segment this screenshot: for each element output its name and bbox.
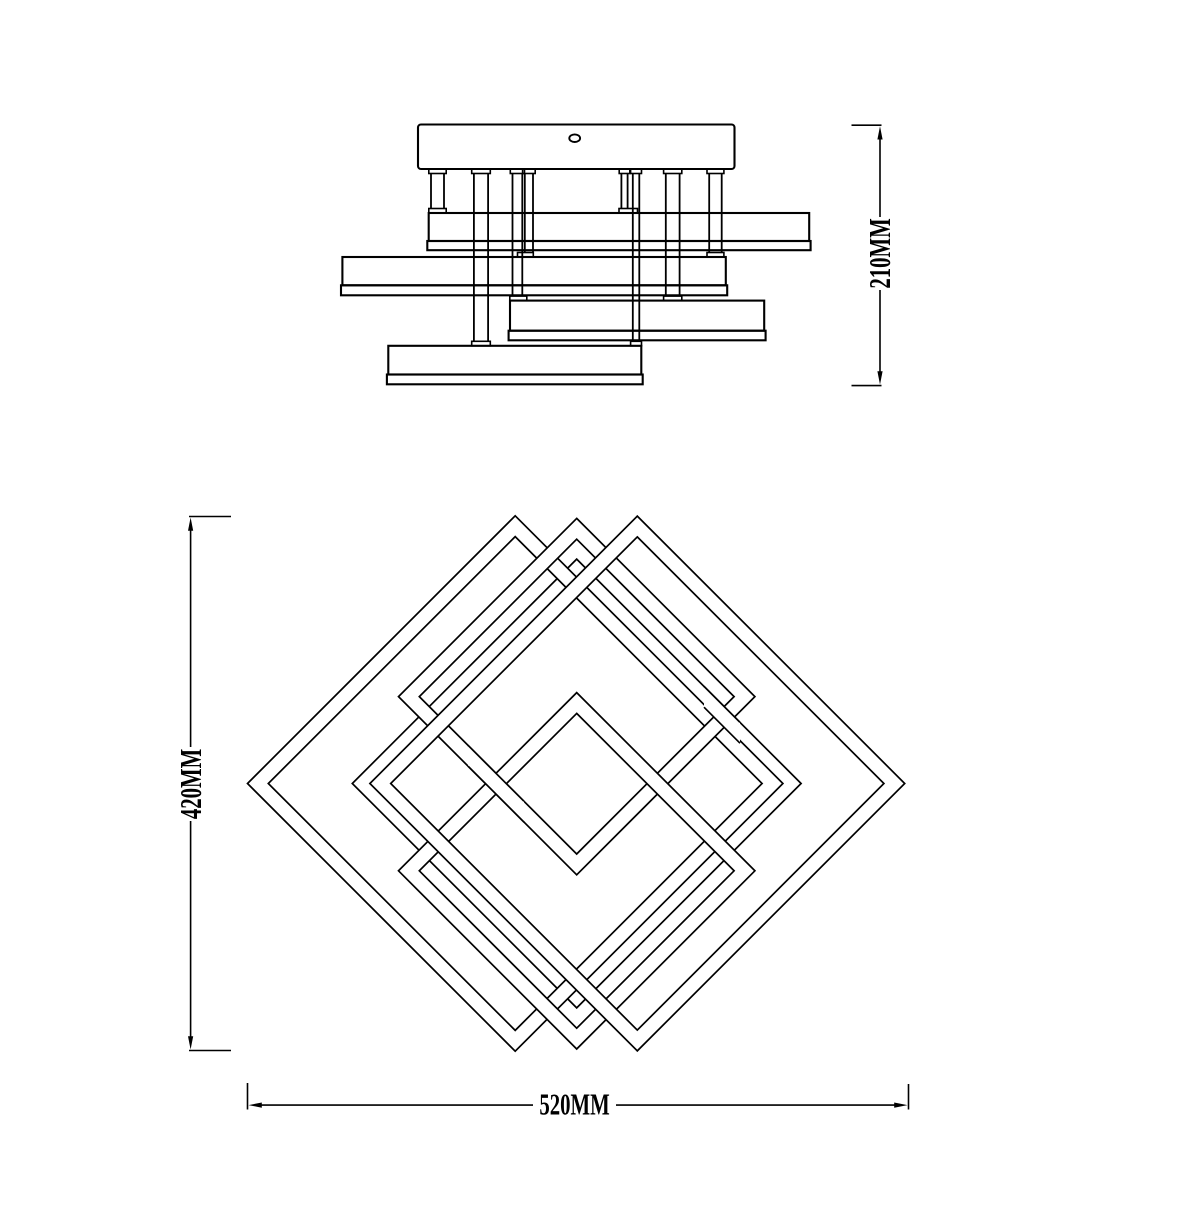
svg-text:420MM: 420MM [173,749,208,819]
svg-text:210MM: 210MM [862,218,897,288]
svg-text:520MM: 520MM [539,1086,609,1121]
